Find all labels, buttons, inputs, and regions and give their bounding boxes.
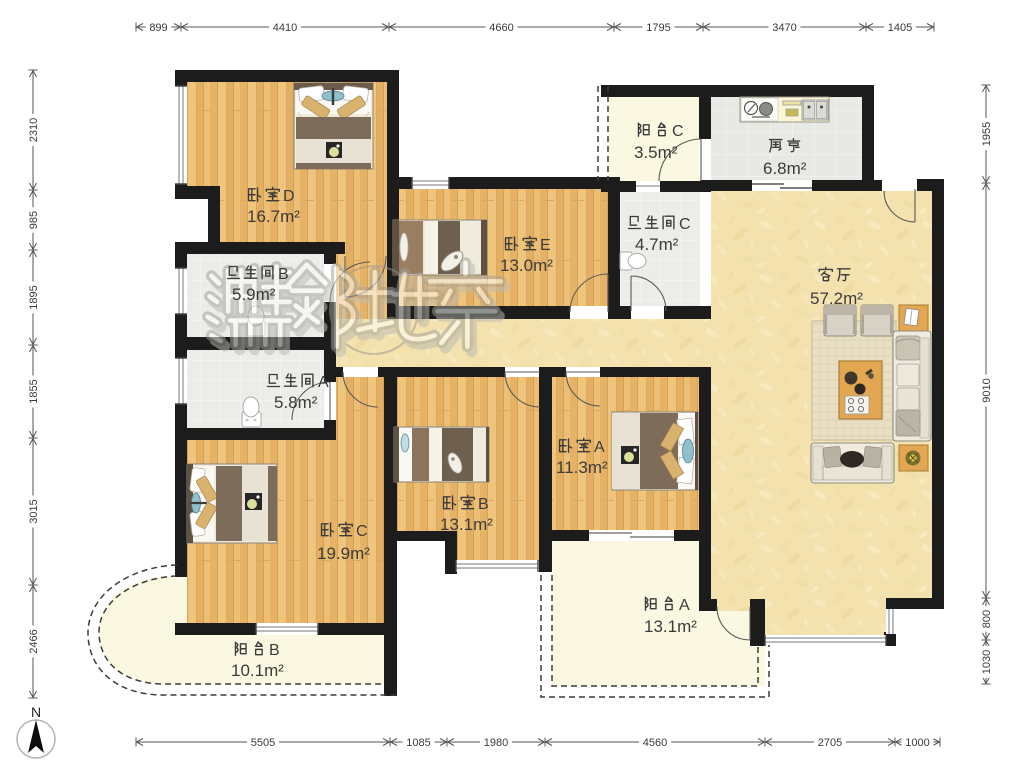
svg-text:C: C xyxy=(356,523,368,540)
svg-text:3470: 3470 xyxy=(772,22,796,34)
svg-text:13.1m²: 13.1m² xyxy=(440,515,493,534)
svg-text:3015: 3015 xyxy=(28,499,40,523)
svg-text:5.9m²: 5.9m² xyxy=(232,285,276,304)
svg-text:13.1m²: 13.1m² xyxy=(644,617,697,636)
svg-text:C: C xyxy=(679,216,691,233)
svg-text:1085: 1085 xyxy=(406,737,430,749)
svg-text:5505: 5505 xyxy=(251,737,275,749)
svg-text:13.0m²: 13.0m² xyxy=(500,256,553,275)
svg-text:4410: 4410 xyxy=(273,22,297,34)
svg-text:1000: 1000 xyxy=(905,737,929,749)
svg-text:4.7m²: 4.7m² xyxy=(635,235,679,254)
svg-text:4660: 4660 xyxy=(489,22,513,34)
svg-text:57.2m²: 57.2m² xyxy=(810,289,863,308)
svg-text:1895: 1895 xyxy=(28,285,40,309)
svg-text:4560: 4560 xyxy=(643,737,667,749)
svg-text:899: 899 xyxy=(149,22,167,34)
svg-text:11.3m²: 11.3m² xyxy=(556,458,608,477)
svg-text:1855: 1855 xyxy=(28,379,40,403)
svg-text:E: E xyxy=(540,237,551,254)
svg-text:B: B xyxy=(478,496,489,513)
svg-text:1980: 1980 xyxy=(484,737,508,749)
svg-text:D: D xyxy=(283,188,295,205)
svg-text:C: C xyxy=(672,123,684,140)
svg-text:6.8m²: 6.8m² xyxy=(763,159,807,178)
svg-text:A: A xyxy=(594,439,605,456)
svg-text:16.7m²: 16.7m² xyxy=(247,207,300,226)
svg-text:2466: 2466 xyxy=(28,629,40,653)
svg-text:1405: 1405 xyxy=(888,22,912,34)
svg-text:2705: 2705 xyxy=(818,737,842,749)
svg-text:2310: 2310 xyxy=(28,118,40,142)
svg-text:1795: 1795 xyxy=(646,22,670,34)
svg-text:10.1m²: 10.1m² xyxy=(231,661,284,680)
svg-text:B: B xyxy=(278,266,289,283)
svg-text:3.5m²: 3.5m² xyxy=(634,143,678,162)
svg-text:1030: 1030 xyxy=(981,650,993,674)
svg-text:19.9m²: 19.9m² xyxy=(317,544,370,563)
svg-text:B: B xyxy=(269,642,280,659)
svg-text:800: 800 xyxy=(981,610,993,628)
svg-text:985: 985 xyxy=(28,211,40,229)
svg-text:N: N xyxy=(31,704,41,720)
svg-text:A: A xyxy=(318,374,329,391)
svg-text:5.8m²: 5.8m² xyxy=(274,393,318,412)
svg-text:9010: 9010 xyxy=(981,378,993,402)
svg-text:1955: 1955 xyxy=(981,122,993,146)
svg-text:A: A xyxy=(679,597,690,614)
